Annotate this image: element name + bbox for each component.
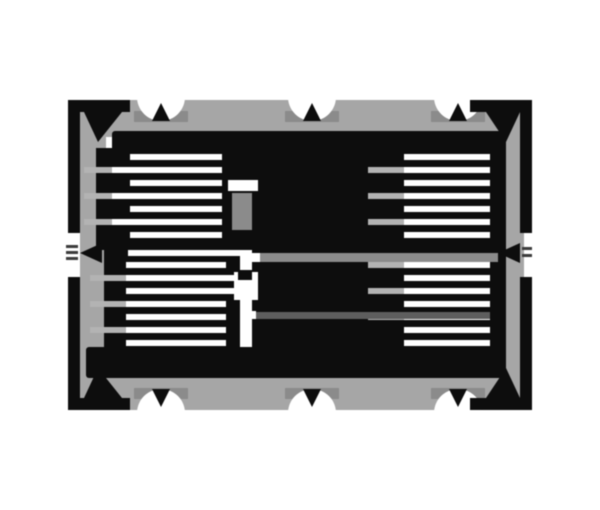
mid-slit-upper-tip [244,253,260,262]
alignment-tick-left [66,257,78,260]
mid-slit-lower-tip [240,311,256,319]
left-grids-connector [104,240,128,260]
grid-slot [404,327,490,333]
grid-slot [404,180,490,186]
grid-slot [404,193,490,199]
corner-bracket-bottom-right-arm-v [520,277,532,410]
grid-slot [130,219,222,225]
grid-lead-line [368,288,404,294]
alignment-tick-right [522,254,532,257]
grid-slot [404,167,490,173]
grid-slot [130,193,222,199]
grid-slot [130,154,222,160]
alignment-tick-left [66,251,78,254]
corner-bracket-bottom-left-arm-v [68,277,80,410]
mid-slit-upper [256,253,498,262]
grid-slot [130,232,222,238]
grid-lead-line [84,193,112,199]
grid-lead-line [112,193,130,199]
grid-slot [404,262,490,268]
grid-slot [404,275,490,281]
corner-bracket-top-right-arm-v [520,100,532,233]
lower-right-leads-base [368,253,400,354]
grid-slot [404,206,490,212]
grid-slot [130,206,222,212]
alignment-tick-right [522,247,532,250]
grid-lead-line [90,327,126,333]
grid-slot [404,340,490,346]
grid-lead-line [90,275,126,281]
mid-left-white-notch [228,180,258,191]
grid-lead-line [368,262,404,268]
grid-lead-line [368,193,404,199]
strain-gauge-diagram [0,0,600,510]
grid-lead-line [368,167,404,173]
grid-slot [404,219,490,225]
center-tab-notch [238,270,252,280]
gauge-svg [0,0,600,510]
grid-slot [404,288,490,294]
grid-slot [404,154,490,160]
grid-slot [130,167,222,173]
mid-left-gray-patch [232,193,252,230]
grid-lead-line [368,219,404,225]
mid-slit-lower [252,312,490,319]
alignment-tick-left [66,245,78,248]
grid-lead-line [112,167,130,173]
grid-slot [126,314,226,320]
grid-slot [126,340,226,346]
corner-bracket-top-left-arm-v [68,100,80,233]
grid-slot [126,301,226,307]
grid-lead-line [112,219,130,225]
upper-right-leads-base [368,148,400,253]
grid-lead-line [84,219,112,225]
grid-slot [126,262,226,268]
grid-slot [130,180,222,186]
grid-slot [404,301,490,307]
grid-slot [126,327,226,333]
grid-slot [126,275,226,281]
grid-slot [126,288,226,294]
grid-slot [404,232,490,238]
grid-lead-line [90,301,126,307]
grid-lead-line [84,167,112,173]
